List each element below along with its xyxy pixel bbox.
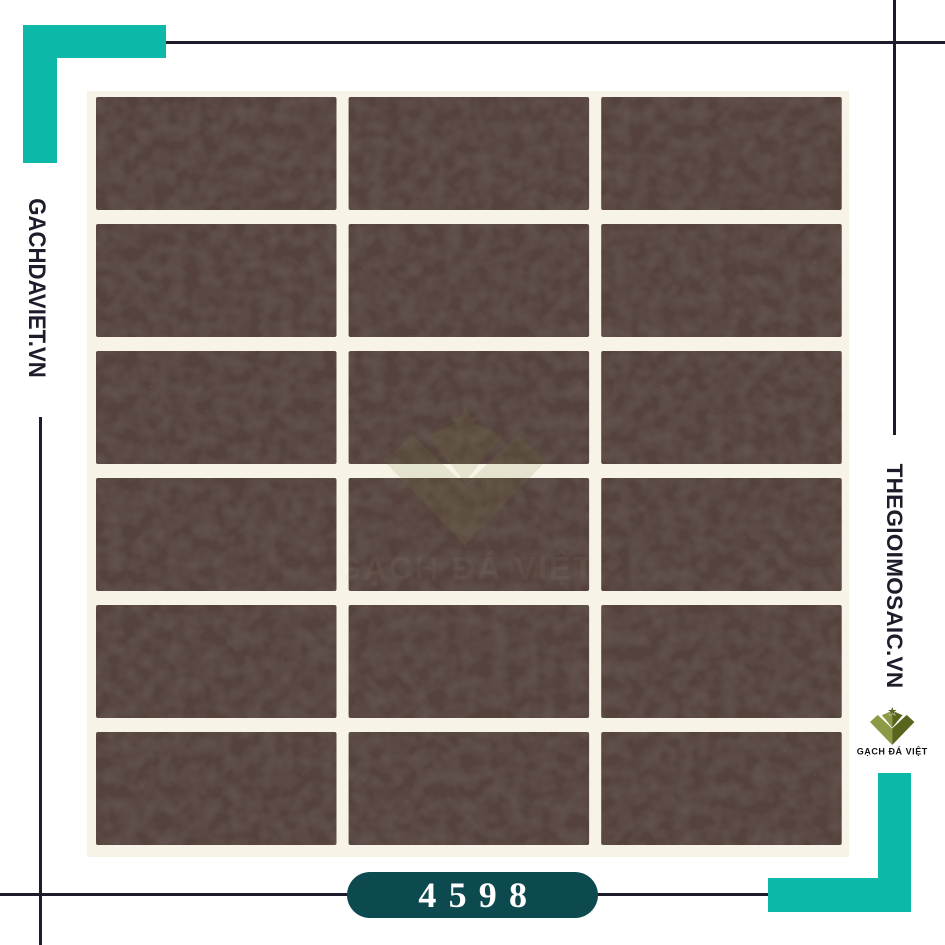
svg-text:GẠCH ĐÁ VIỆT: GẠCH ĐÁ VIỆT <box>336 550 595 587</box>
svg-text:GẠCH ĐÁ VIỆT: GẠCH ĐÁ VIỆT <box>857 746 928 757</box>
